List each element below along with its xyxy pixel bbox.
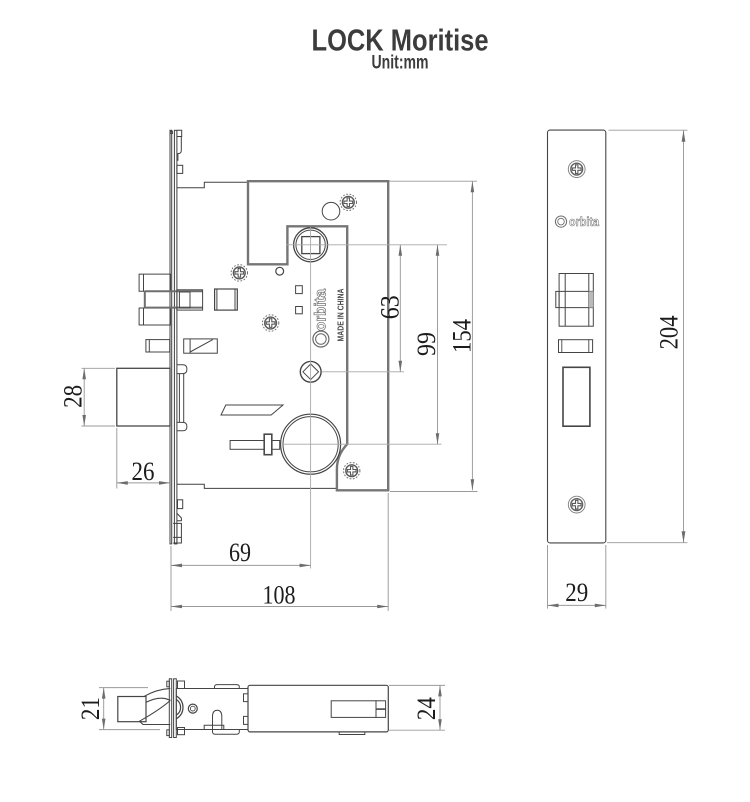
svg-text:154: 154 — [448, 319, 477, 353]
svg-text:108: 108 — [263, 581, 296, 610]
svg-text:MADE IN CHINA: MADE IN CHINA — [337, 288, 346, 341]
svg-text:orbita: orbita — [569, 215, 600, 229]
svg-text:29: 29 — [565, 578, 588, 607]
svg-text:69: 69 — [229, 538, 251, 567]
svg-text:24: 24 — [412, 697, 441, 720]
svg-text:28: 28 — [59, 385, 88, 408]
svg-text:99: 99 — [412, 332, 441, 356]
svg-text:21: 21 — [76, 697, 105, 720]
svg-text:63: 63 — [376, 295, 405, 319]
svg-text:26: 26 — [132, 457, 155, 486]
svg-text:orbita: orbita — [313, 289, 330, 331]
svg-text:Unit:mm: Unit:mm — [372, 53, 429, 74]
svg-text:204: 204 — [655, 315, 684, 349]
